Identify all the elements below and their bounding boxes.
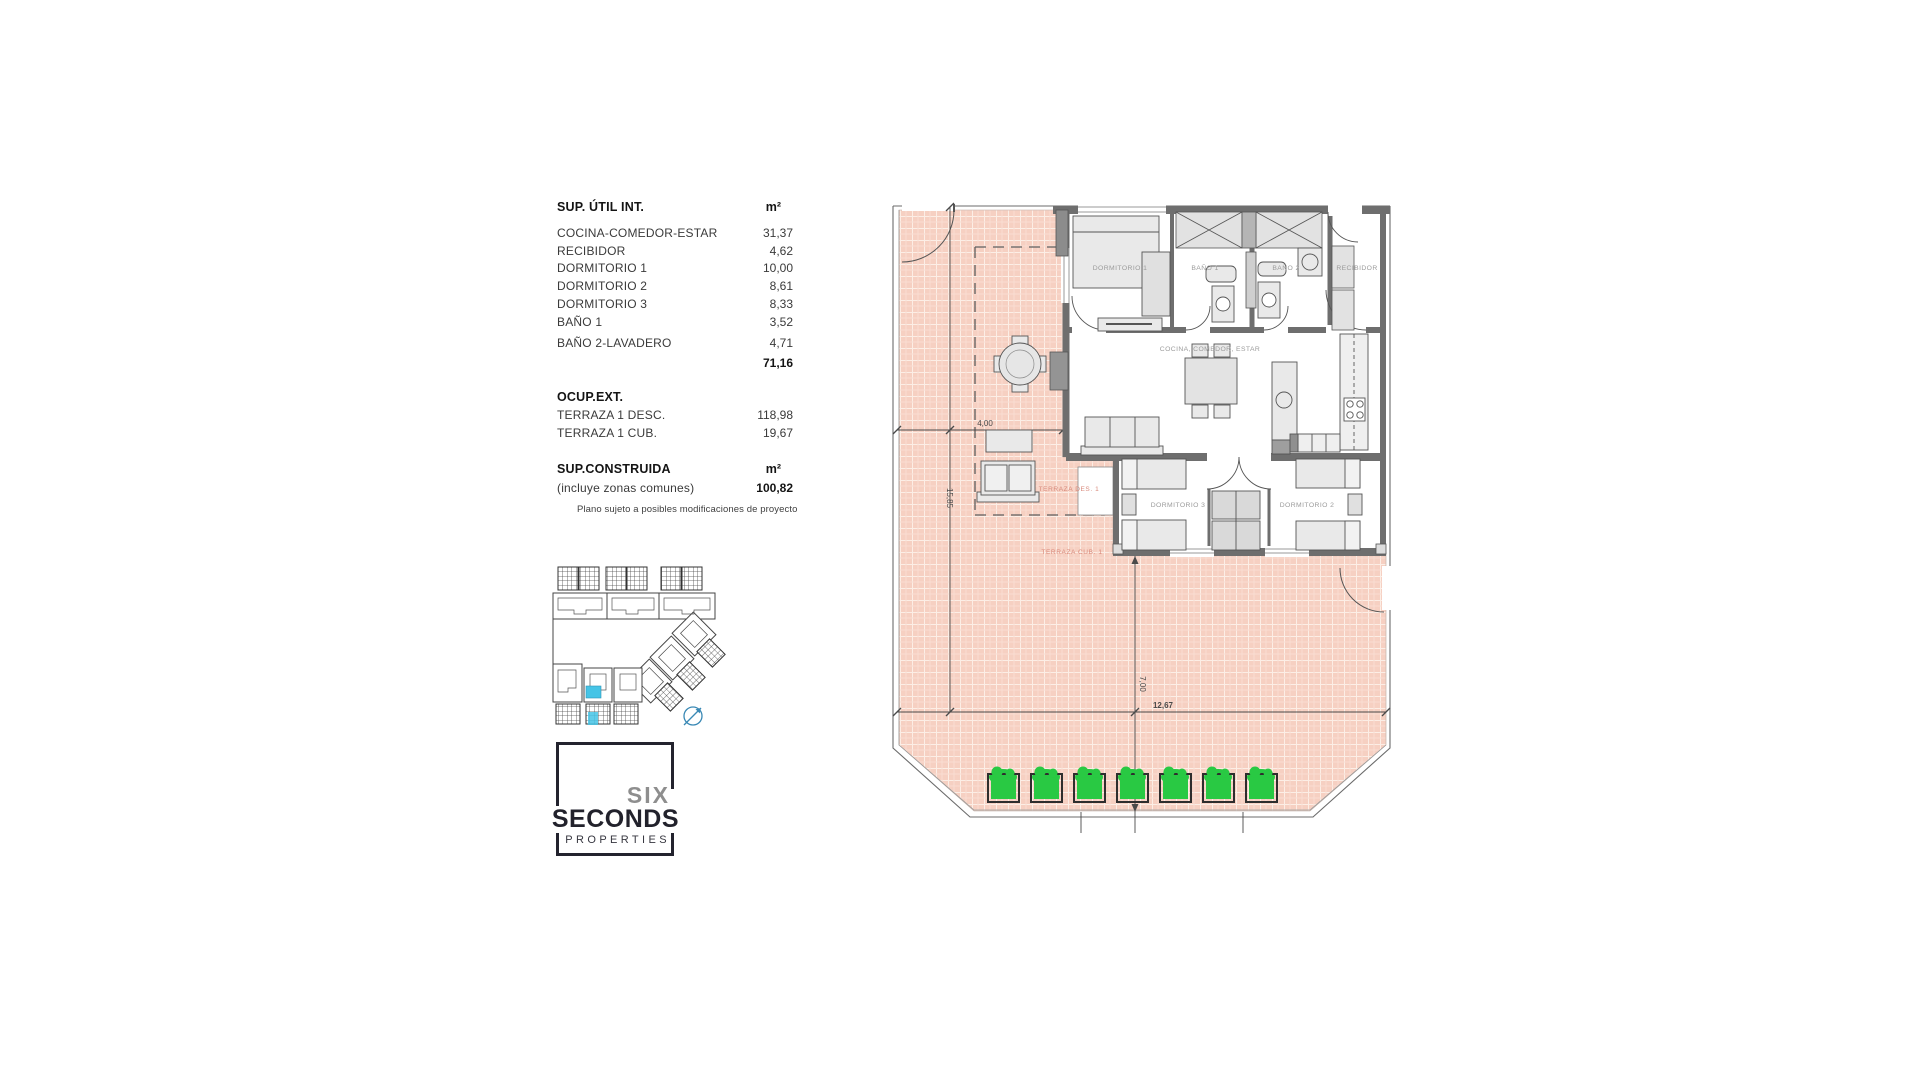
row-label: BAÑO 1 [557, 315, 602, 329]
row-value: 31,37 [763, 226, 793, 240]
table-row: RECIBIDOR 4,62 [557, 244, 793, 258]
room-label-bano-2: BAÑO 2 [1272, 263, 1299, 272]
highlighted-parking [588, 712, 598, 725]
table-row: DORMITORIO 1 10,00 [557, 261, 793, 275]
sideboard [1098, 318, 1162, 331]
table-row: DORMITORIO 3 8,33 [557, 297, 793, 311]
floor-plan: 4,00 15,85 7,00 12,67 [890, 200, 1400, 845]
room-label-bano-1: BAÑO 1 [1191, 263, 1218, 272]
row-value: 10,00 [763, 261, 793, 275]
terrace-loveseat [977, 461, 1039, 502]
unit-header: m² [766, 200, 793, 214]
table-row: BAÑO 1 3,52 [557, 315, 793, 329]
row-value: 19,67 [763, 426, 793, 440]
disclaimer-text: Plano sujeto a posibles modificaciones d… [577, 504, 797, 515]
total-value: 71,16 [763, 356, 793, 370]
row-label: DORMITORIO 2 [557, 279, 647, 293]
dim-terrace-height: 15,85 [945, 488, 954, 509]
row-value: 8,33 [770, 297, 793, 311]
row-label: TERRAZA 1 DESC. [557, 408, 665, 422]
row-value: 3,52 [770, 315, 793, 329]
room-label-dormitorio-2: DORMITORIO 2 [1280, 502, 1335, 509]
row-label: DORMITORIO 1 [557, 261, 647, 275]
row-value: 4,62 [770, 244, 793, 258]
built-title: SUP.CONSTRUIDA [557, 462, 671, 476]
built-note: (incluye zonas comunes) [557, 481, 694, 495]
table-row: DORMITORIO 2 8,61 [557, 279, 793, 293]
row-label: TERRAZA 1 CUB. [557, 426, 657, 440]
logo-word-seconds: SECONDS [550, 806, 681, 833]
logo-frame-segment [671, 745, 674, 789]
room-label-dormitorio-1: DORMITORIO 1 [1093, 265, 1148, 272]
ext-header-row: OCUP.EXT. [557, 390, 793, 404]
parking-grills-top [558, 567, 702, 590]
room-label-dormitorio-3: DORMITORIO 3 [1151, 502, 1206, 509]
row-label: BAÑO 2-LAVADERO [557, 336, 672, 350]
logo-word-six: SIX [627, 784, 670, 807]
row-label: DORMITORIO 3 [557, 297, 647, 311]
floorplan-sheet: SUP. ÚTIL INT. m² COCINA-COMEDOR-ESTAR 3… [0, 0, 1920, 1080]
logo-word-properties: PROPERTIES [565, 835, 670, 846]
built-value-row: (incluye zonas comunes) 100,82 [557, 481, 793, 495]
table-total-row: 71,16 [557, 356, 793, 370]
built-unit-header: m² [766, 462, 793, 476]
label-terraza-descubierta: TERRAZA DES. 1 [1039, 486, 1100, 493]
row-value: 8,61 [770, 279, 793, 293]
brand-logo: SIX SECONDS PROPERTIES [556, 742, 674, 856]
terrace-table [986, 430, 1032, 452]
highlighted-unit [586, 686, 601, 698]
table-row: BAÑO 2-LAVADERO 4,71 [557, 336, 793, 350]
row-label: COCINA-COMEDOR-ESTAR [557, 226, 717, 240]
room-label-recibidor: RECIBIDOR [1336, 265, 1377, 272]
room-label-cocina: COCINA, COMEDOR, ESTAR [1160, 346, 1260, 353]
row-label: RECIBIDOR [557, 244, 625, 258]
label-terraza-cubierta: TERRAZA CUB. 1 [1041, 549, 1102, 556]
built-header-row: SUP.CONSTRUIDA m² [557, 462, 793, 476]
dim-right-height: 7,00 [1138, 676, 1147, 692]
dim-bottom-width: 12,67 [1153, 701, 1174, 710]
built-value: 100,82 [756, 481, 793, 495]
table-row: COCINA-COMEDOR-ESTAR 31,37 [557, 226, 793, 240]
table-title: SUP. ÚTIL INT. [557, 200, 644, 214]
north-compass-icon [684, 707, 702, 725]
sofa [1081, 417, 1163, 455]
table-row: TERRAZA 1 CUB. 19,67 [557, 426, 793, 440]
site-plan-thumbnail [548, 560, 738, 738]
row-value: 118,98 [757, 408, 793, 422]
ext-title: OCUP.EXT. [557, 390, 623, 404]
table-row: TERRAZA 1 DESC. 118,98 [557, 408, 793, 422]
dim-terrace-width: 4,00 [977, 419, 993, 428]
row-value: 4,71 [770, 336, 793, 350]
table-header-row: SUP. ÚTIL INT. m² [557, 200, 793, 214]
